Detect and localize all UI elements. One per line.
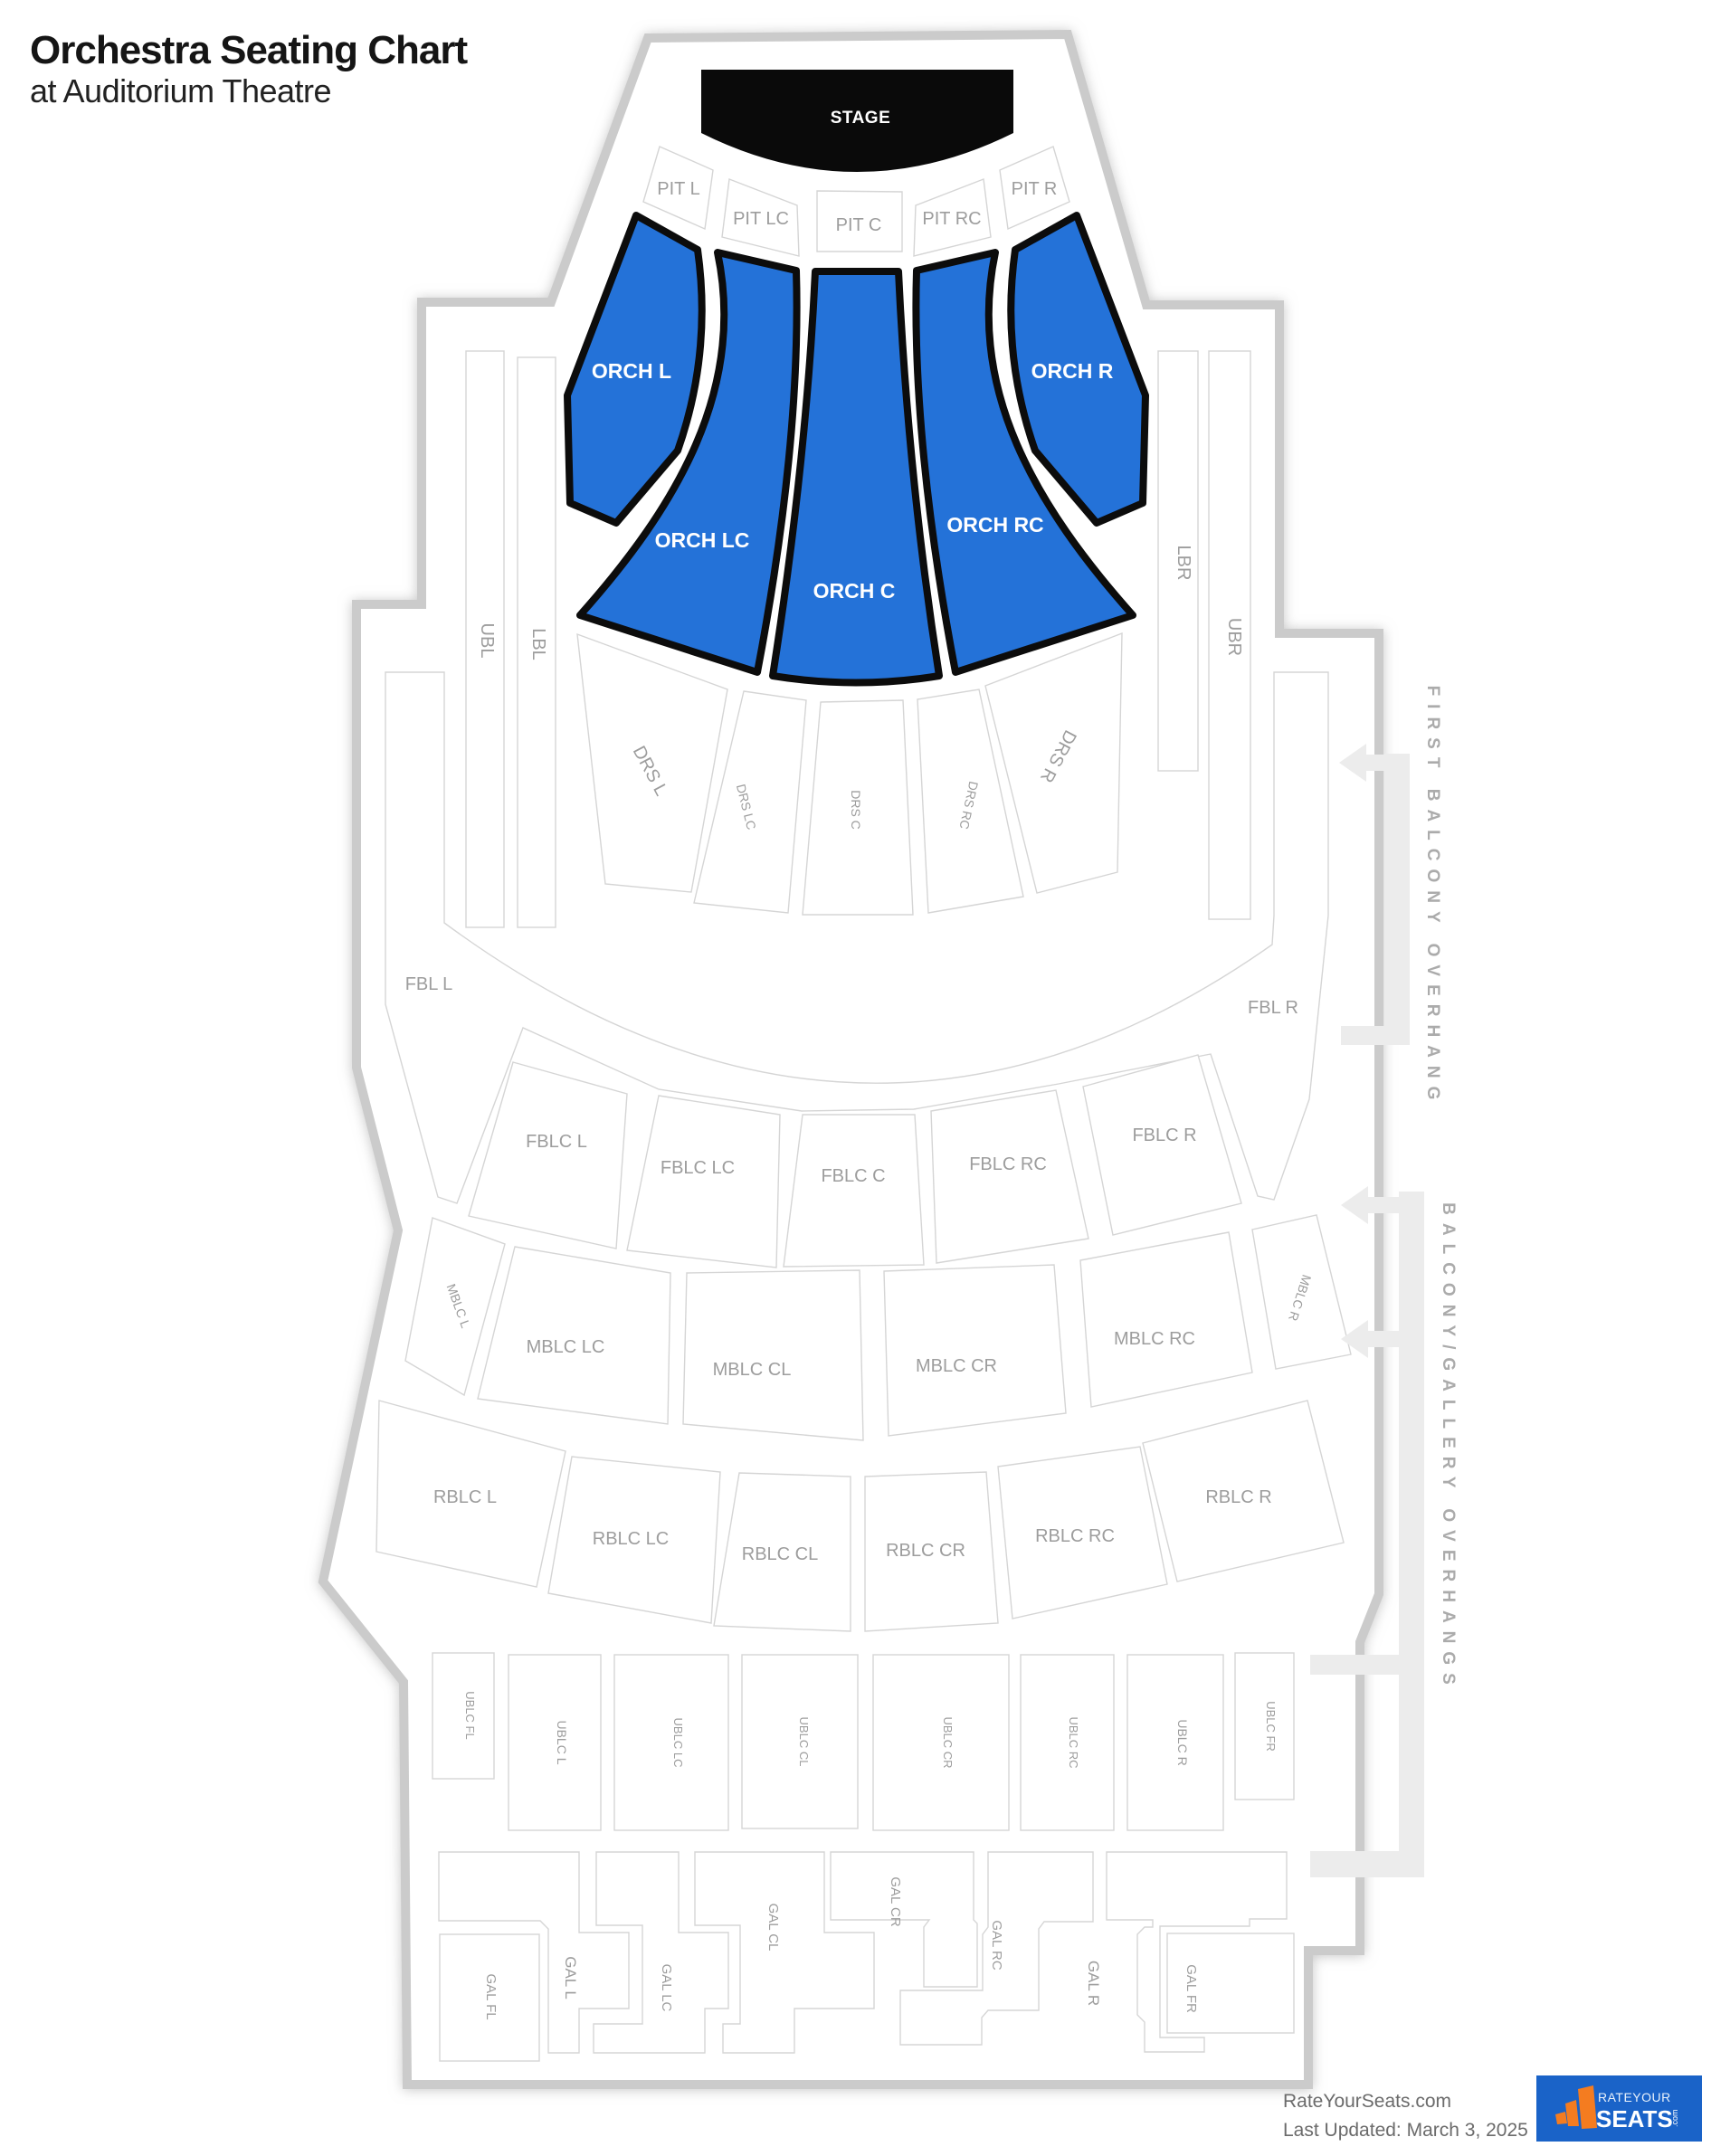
svg-text:UBLC FR: UBLC FR [1264, 1701, 1278, 1752]
svg-text:RBLC RC: RBLC RC [1035, 1526, 1115, 1546]
svg-text:RBLC LC: RBLC LC [593, 1529, 669, 1549]
svg-text:STAGE: STAGE [831, 109, 891, 128]
svg-text:GAL CR: GAL CR [888, 1876, 903, 1926]
svg-text:RBLC CR: RBLC CR [886, 1541, 965, 1561]
svg-text:MBLC CL: MBLC CL [713, 1360, 792, 1380]
svg-text:Last Updated: March 3, 2025: Last Updated: March 3, 2025 [1283, 2120, 1528, 2141]
svg-text:GAL L: GAL L [562, 1956, 579, 1999]
svg-text:GAL FL: GAL FL [483, 1973, 499, 2019]
svg-text:FBLC LC: FBLC LC [661, 1158, 735, 1178]
svg-text:ORCH C: ORCH C [813, 579, 896, 603]
svg-text:UBR: UBR [1224, 618, 1244, 656]
svg-text:RBLC L: RBLC L [433, 1487, 497, 1507]
svg-text:LBR: LBR [1174, 546, 1193, 581]
svg-text:GAL R: GAL R [1085, 1961, 1102, 2006]
svg-text:UBLC CR: UBLC CR [941, 1716, 955, 1768]
svg-text:ORCH L: ORCH L [592, 359, 671, 383]
svg-text:UBLC RC: UBLC RC [1067, 1716, 1080, 1768]
svg-text:BALCONY/GALLERY OVERHANGS: BALCONY/GALLERY OVERHANGS [1439, 1202, 1458, 1693]
svg-text:RBLC R: RBLC R [1205, 1487, 1271, 1507]
svg-text:FBL L: FBL L [405, 974, 453, 994]
svg-text:at Auditorium Theatre: at Auditorium Theatre [30, 72, 331, 109]
svg-text:UBLC CL: UBLC CL [797, 1717, 811, 1767]
svg-text:LBL: LBL [528, 628, 548, 660]
svg-text:RateYourSeats.com: RateYourSeats.com [1283, 2091, 1451, 2112]
svg-text:FIRST BALCONY OVERHANG: FIRST BALCONY OVERHANG [1423, 686, 1442, 1108]
svg-text:RBLC CL: RBLC CL [742, 1544, 818, 1564]
svg-text:MBLC LC: MBLC LC [527, 1337, 605, 1357]
svg-text:PIT L: PIT L [657, 179, 699, 199]
svg-text:FBLC C: FBLC C [821, 1166, 885, 1186]
svg-text:PIT LC: PIT LC [733, 209, 789, 229]
svg-text:SEATS: SEATS [1596, 2105, 1673, 2132]
svg-text:.com: .com [1670, 2109, 1679, 2127]
svg-text:FBLC R: FBLC R [1132, 1125, 1196, 1145]
svg-text:UBLC LC: UBLC LC [671, 1718, 685, 1768]
svg-text:FBL R: FBL R [1248, 998, 1298, 1018]
svg-text:ORCH R: ORCH R [1031, 359, 1114, 383]
svg-text:UBLC FL: UBLC FL [463, 1691, 477, 1739]
svg-text:GAL LC: GAL LC [659, 1964, 674, 2012]
svg-text:PIT R: PIT R [1012, 179, 1058, 199]
svg-text:FBLC RC: FBLC RC [969, 1154, 1047, 1174]
svg-text:GAL FR: GAL FR [1183, 1964, 1199, 2013]
svg-text:DRS C: DRS C [849, 790, 863, 830]
svg-text:ORCH LC: ORCH LC [655, 528, 750, 552]
svg-text:GAL RC: GAL RC [989, 1920, 1004, 1970]
svg-text:RATEYOUR: RATEYOUR [1598, 2090, 1671, 2104]
svg-text:MBLC CR: MBLC CR [916, 1356, 997, 1376]
svg-text:UBL: UBL [477, 623, 497, 659]
svg-text:FBLC L: FBLC L [526, 1132, 587, 1152]
svg-text:Orchestra Seating Chart: Orchestra Seating Chart [30, 28, 468, 72]
svg-text:ORCH RC: ORCH RC [946, 513, 1043, 537]
svg-text:PIT RC: PIT RC [922, 209, 981, 229]
svg-text:MBLC RC: MBLC RC [1114, 1329, 1195, 1349]
svg-text:PIT C: PIT C [836, 215, 882, 235]
svg-text:UBLC L: UBLC L [555, 1720, 569, 1764]
svg-text:GAL CL: GAL CL [765, 1904, 781, 1952]
svg-text:UBLC R: UBLC R [1175, 1719, 1190, 1765]
